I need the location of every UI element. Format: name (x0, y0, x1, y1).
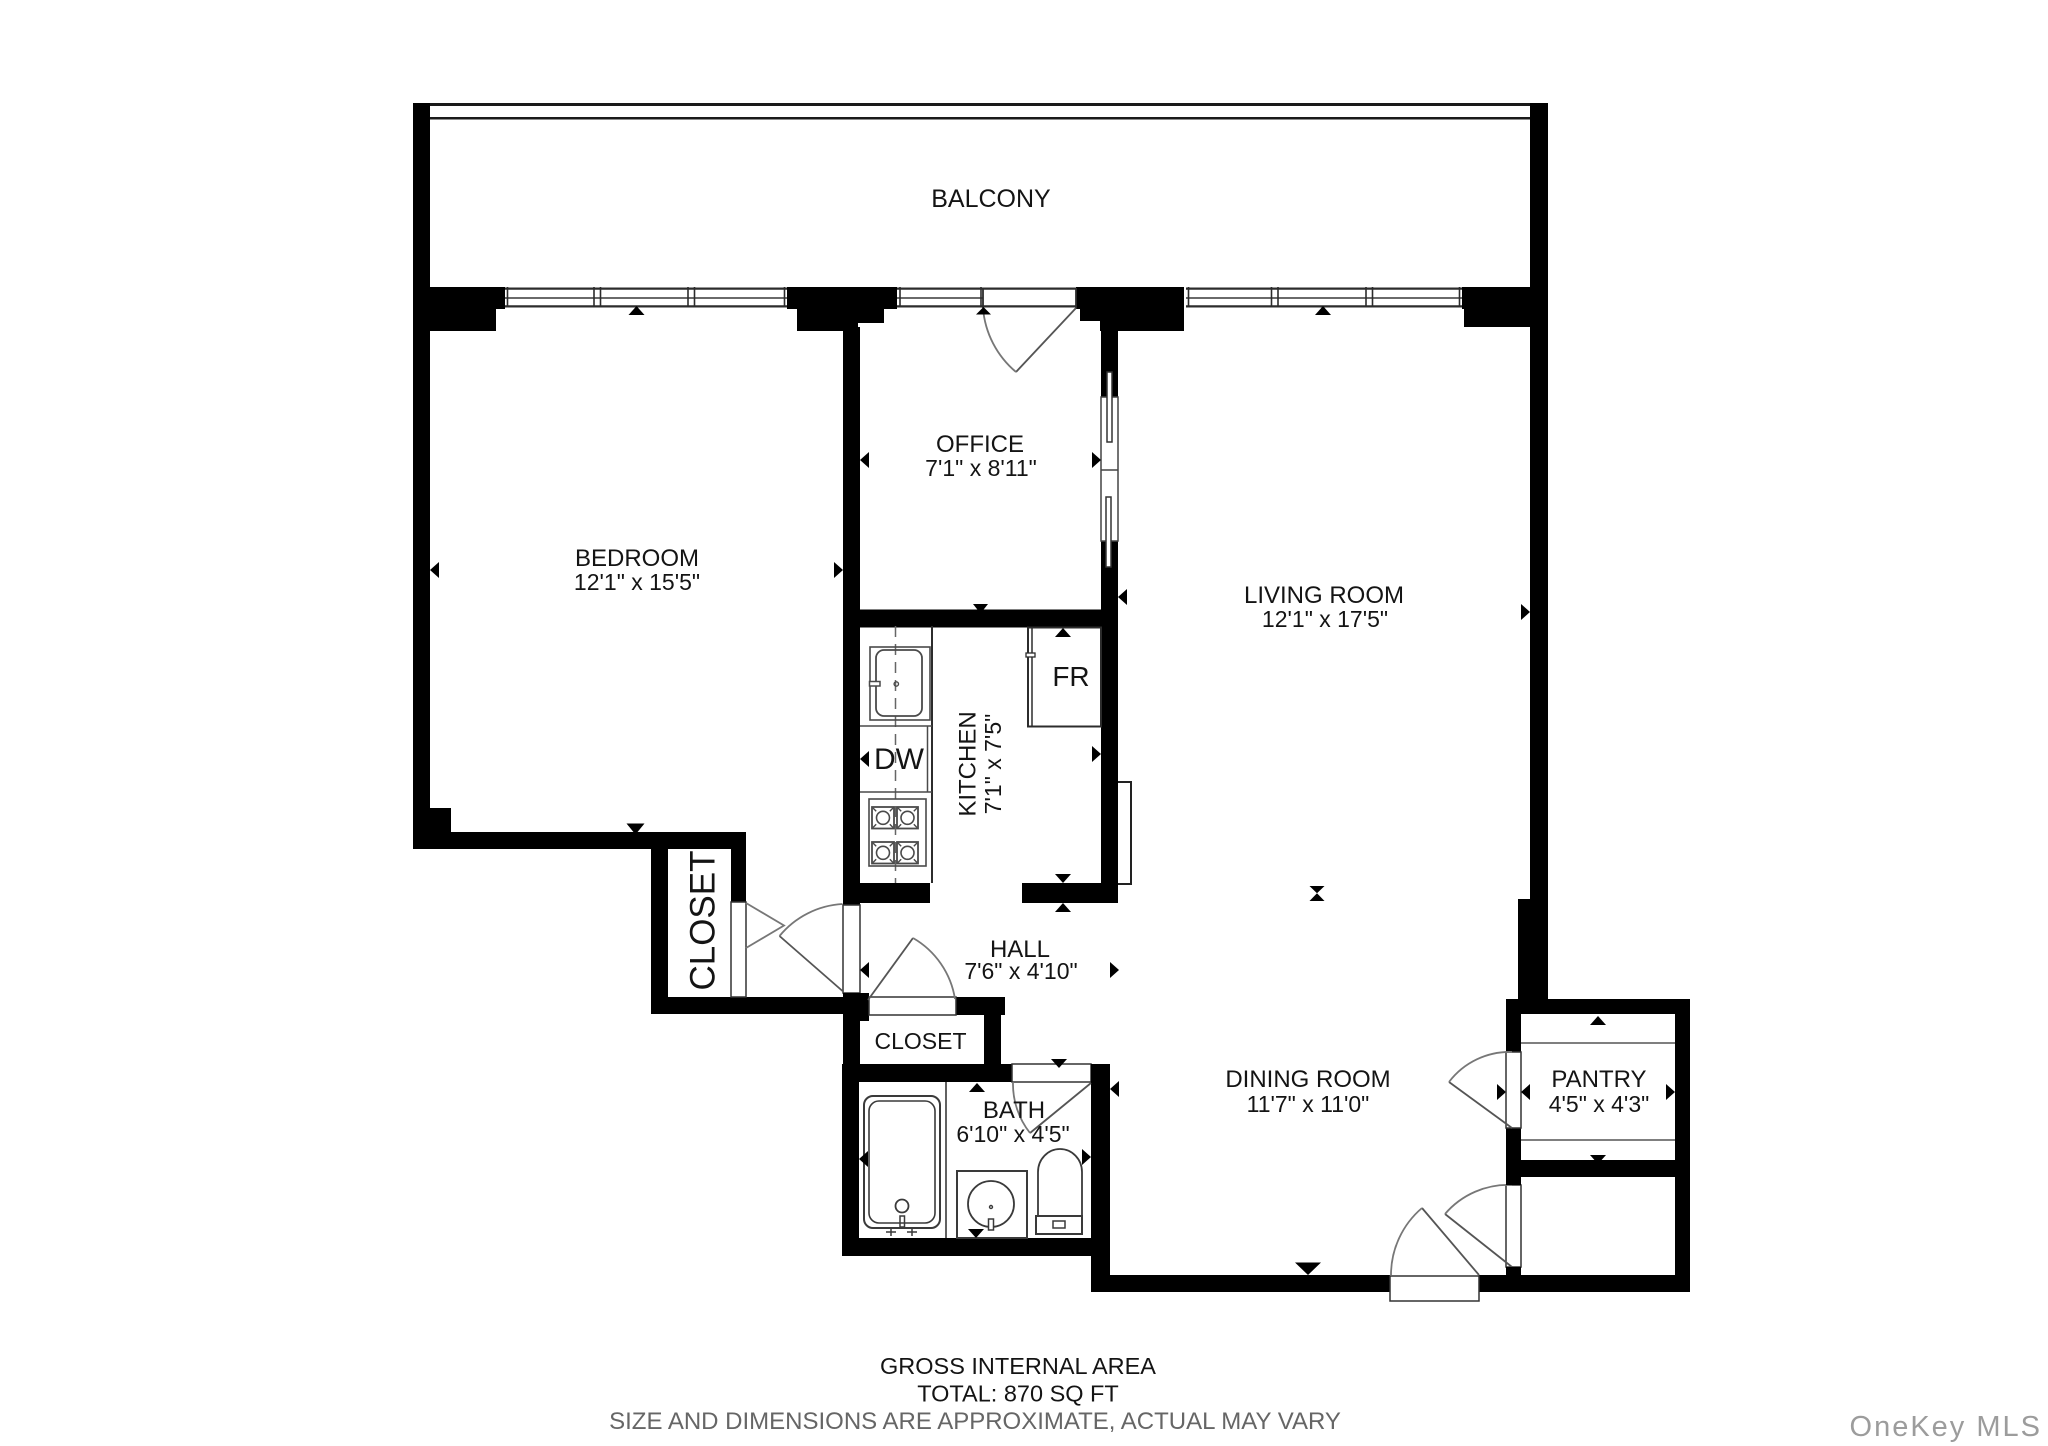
svg-text:CLOSET: CLOSET (684, 850, 723, 990)
svg-text:KITCHEN: KITCHEN (955, 711, 982, 816)
svg-text:11'7" x 11'0": 11'7" x 11'0" (1247, 1091, 1370, 1117)
svg-text:7'6" x 4'10": 7'6" x 4'10" (964, 958, 1077, 984)
svg-text:12'1" x 15'5": 12'1" x 15'5" (574, 569, 700, 595)
svg-text:FR: FR (1052, 661, 1089, 692)
svg-text:6'10" x 4'5": 6'10" x 4'5" (956, 1121, 1069, 1147)
svg-text:BATH: BATH (983, 1097, 1045, 1124)
svg-text:OFFICE: OFFICE (936, 431, 1024, 458)
svg-text:7'1" x 8'11": 7'1" x 8'11" (925, 455, 1037, 481)
svg-text:PANTRY: PANTRY (1551, 1066, 1646, 1093)
svg-text:SIZE AND DIMENSIONS ARE APPROX: SIZE AND DIMENSIONS ARE APPROXIMATE, ACT… (609, 1408, 1341, 1435)
svg-text:DINING ROOM: DINING ROOM (1225, 1066, 1390, 1093)
svg-text:BEDROOM: BEDROOM (575, 545, 699, 572)
svg-text:OneKey MLS: OneKey MLS (1850, 1411, 2042, 1443)
svg-text:4'5" x 4'3": 4'5" x 4'3" (1549, 1091, 1650, 1117)
svg-text:DW: DW (874, 743, 925, 776)
svg-text:12'1" x 17'5": 12'1" x 17'5" (1262, 606, 1388, 632)
svg-text:GROSS INTERNAL AREA: GROSS INTERNAL AREA (880, 1353, 1156, 1379)
svg-text:LIVING ROOM: LIVING ROOM (1244, 582, 1404, 609)
svg-text:7'1" x 7'5": 7'1" x 7'5" (980, 714, 1006, 815)
svg-text:TOTAL: 870 SQ FT: TOTAL: 870 SQ FT (917, 1381, 1119, 1407)
svg-text:BALCONY: BALCONY (931, 185, 1051, 213)
svg-text:CLOSET: CLOSET (874, 1028, 966, 1054)
